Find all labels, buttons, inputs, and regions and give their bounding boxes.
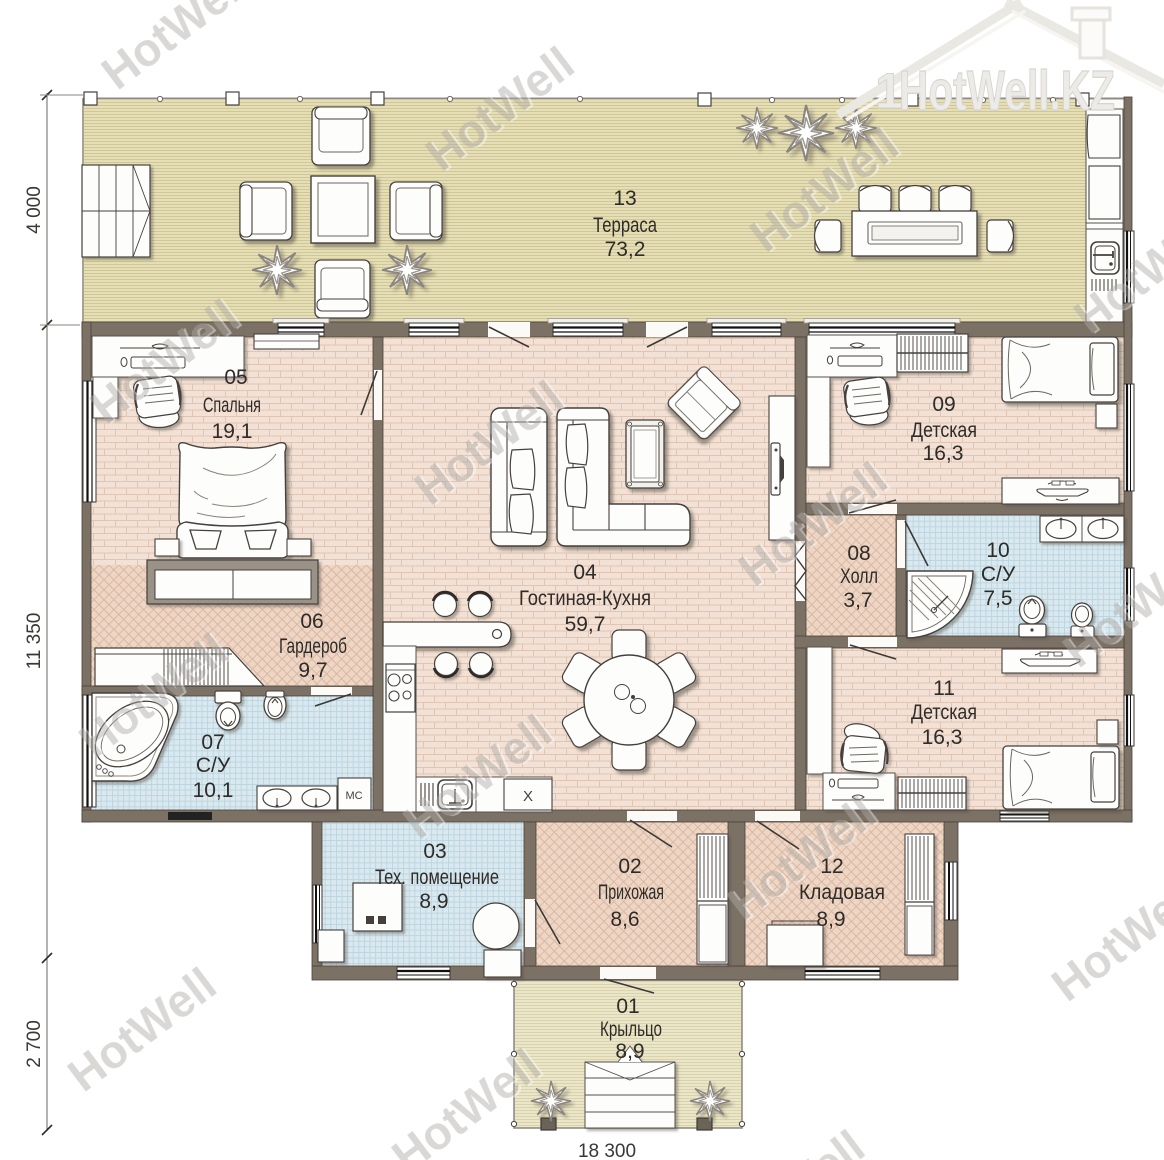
- svg-text:X: X: [523, 788, 533, 805]
- svg-text:8,9: 8,9: [615, 1040, 644, 1063]
- svg-text:С/У: С/У: [196, 754, 231, 777]
- svg-text:10: 10: [986, 539, 1009, 562]
- svg-text:01: 01: [616, 995, 639, 1018]
- svg-text:Спальня: Спальня: [203, 394, 261, 417]
- svg-text:07: 07: [201, 731, 224, 754]
- svg-text:16,3: 16,3: [922, 726, 963, 749]
- svg-text:05: 05: [224, 366, 247, 389]
- svg-text:Крыльцо: Крыльцо: [600, 1018, 662, 1041]
- svg-text:11 350: 11 350: [24, 613, 45, 670]
- svg-text:МС: МС: [345, 790, 362, 802]
- svg-text:73,2: 73,2: [605, 238, 646, 261]
- svg-text:Терраса: Терраса: [593, 214, 657, 237]
- svg-text:HotWell.KZ: HotWell.KZ: [899, 59, 1115, 123]
- svg-text:Детская: Детская: [911, 701, 977, 724]
- svg-text:10,1: 10,1: [193, 779, 234, 802]
- svg-text:7,5: 7,5: [983, 587, 1012, 610]
- svg-text:06: 06: [300, 610, 323, 633]
- svg-text:Гардероб: Гардероб: [279, 635, 347, 658]
- svg-text:02: 02: [618, 855, 641, 878]
- svg-text:19,1: 19,1: [212, 420, 253, 443]
- svg-text:9,7: 9,7: [298, 659, 327, 682]
- svg-text:4 000: 4 000: [24, 186, 45, 234]
- svg-text:Тех. помещение: Тех. помещение: [375, 866, 499, 889]
- svg-text:08: 08: [847, 542, 870, 565]
- svg-text:2 700: 2 700: [24, 1020, 45, 1068]
- svg-text:Гостиная-Кухня: Гостиная-Кухня: [519, 587, 651, 610]
- svg-text:18 300: 18 300: [578, 1141, 636, 1160]
- svg-text:Кладовая: Кладовая: [799, 881, 885, 904]
- svg-text:Прихожая: Прихожая: [598, 881, 664, 904]
- svg-text:8,6: 8,6: [610, 908, 639, 931]
- svg-text:04: 04: [573, 561, 597, 584]
- svg-text:11: 11: [933, 677, 955, 700]
- svg-text:13: 13: [613, 187, 636, 210]
- svg-text:09: 09: [932, 393, 955, 416]
- svg-text:С/У: С/У: [981, 563, 1016, 586]
- svg-text:1: 1: [875, 63, 903, 119]
- svg-text:8,9: 8,9: [419, 890, 448, 913]
- svg-text:3,7: 3,7: [843, 589, 872, 612]
- svg-text:16,3: 16,3: [923, 442, 964, 465]
- svg-text:59,7: 59,7: [565, 613, 606, 636]
- svg-text:8,9: 8,9: [816, 908, 845, 931]
- svg-text:Детская: Детская: [911, 419, 977, 442]
- svg-text:Холл: Холл: [840, 565, 878, 588]
